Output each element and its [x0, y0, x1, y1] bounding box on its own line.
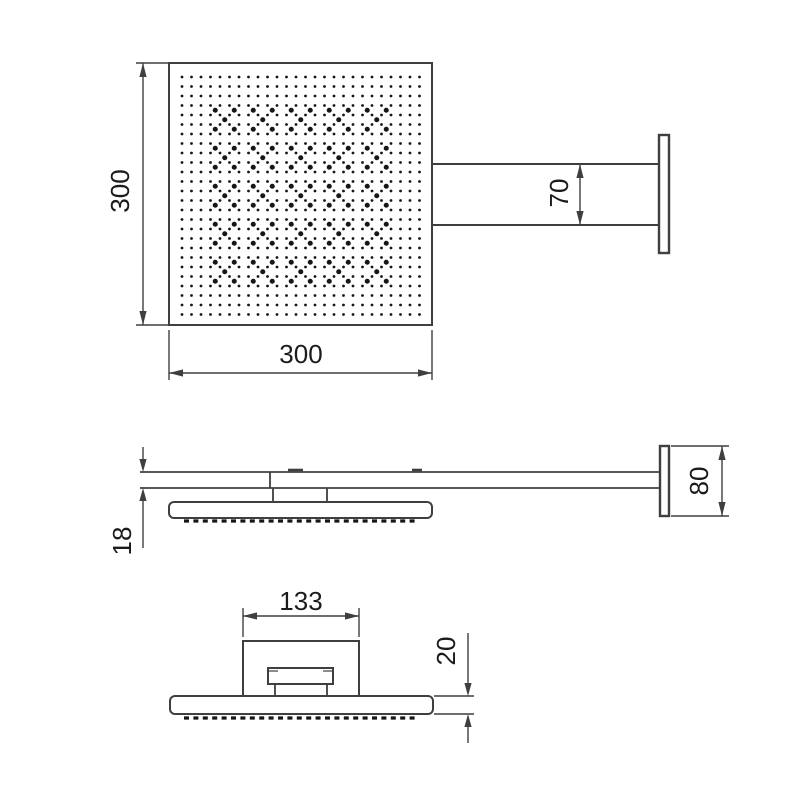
- arrowhead-left: [169, 369, 183, 376]
- dim-label-head-height: 300: [105, 169, 135, 212]
- dim-arm-thickness: 18: [107, 447, 147, 555]
- top-view: 300 300 70: [105, 63, 669, 380]
- arrowhead-left: [243, 612, 257, 619]
- shower-plate-side: [169, 502, 432, 518]
- dim-plate-thickness: 20: [431, 633, 474, 743]
- arrowhead-down: [139, 311, 146, 325]
- dim-bracket-width: 133: [243, 586, 359, 637]
- wall-flange-top: [659, 135, 669, 253]
- dim-arm-width: 70: [544, 164, 584, 225]
- arrowhead-right: [418, 369, 432, 376]
- dim-label-flange-height: 80: [684, 467, 714, 496]
- side-view: 18 80: [107, 446, 729, 555]
- arrowhead-up: [576, 164, 583, 178]
- dim-label-bracket-width: 133: [279, 586, 322, 616]
- arrowhead-right: [345, 612, 359, 619]
- drawing-canvas: 300 300 70: [0, 0, 800, 787]
- arrowhead-down: [139, 459, 146, 472]
- slider-block: [268, 668, 333, 696]
- shower-arm-side: [140, 470, 660, 488]
- dim-label-arm-thickness: 18: [107, 527, 137, 556]
- dim-label-plate-thickness: 20: [431, 637, 461, 666]
- technical-drawing: 300 300 70: [0, 0, 800, 787]
- shower-plate-front: [170, 696, 433, 714]
- arrowhead-up: [718, 446, 725, 460]
- arrowhead-down: [576, 211, 583, 225]
- head-connector-side: [273, 488, 327, 502]
- arrowhead-up: [139, 488, 146, 501]
- dim-head-height: 300: [105, 63, 169, 325]
- arrowhead-up: [464, 714, 471, 727]
- arrowhead-down: [464, 683, 471, 696]
- dim-flange-height: 80: [671, 446, 729, 516]
- arrowhead-down: [718, 502, 725, 516]
- dim-head-width: 300: [169, 330, 432, 380]
- arrowhead-up: [139, 63, 146, 77]
- front-view: 133 20: [170, 586, 474, 743]
- wall-flange-side: [660, 446, 669, 516]
- dim-label-head-width: 300: [279, 339, 322, 369]
- dim-label-arm-width: 70: [544, 179, 574, 208]
